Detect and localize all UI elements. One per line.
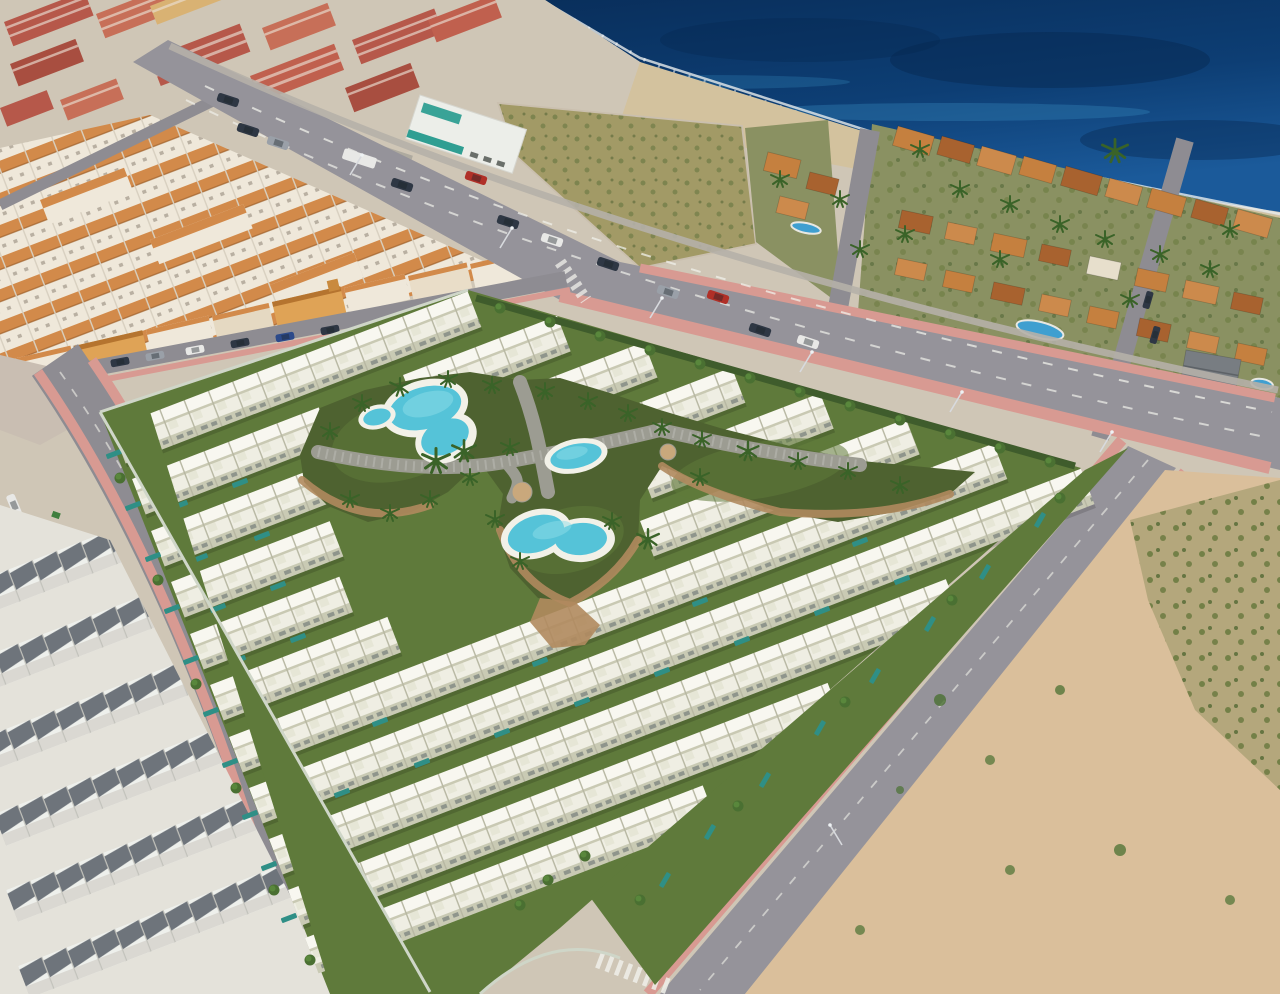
round-planter — [512, 482, 532, 502]
green-bin — [51, 511, 61, 519]
round-planter — [660, 444, 676, 460]
aerial-photo-canvas — [0, 0, 1280, 994]
aerial-photo — [0, 0, 1280, 994]
